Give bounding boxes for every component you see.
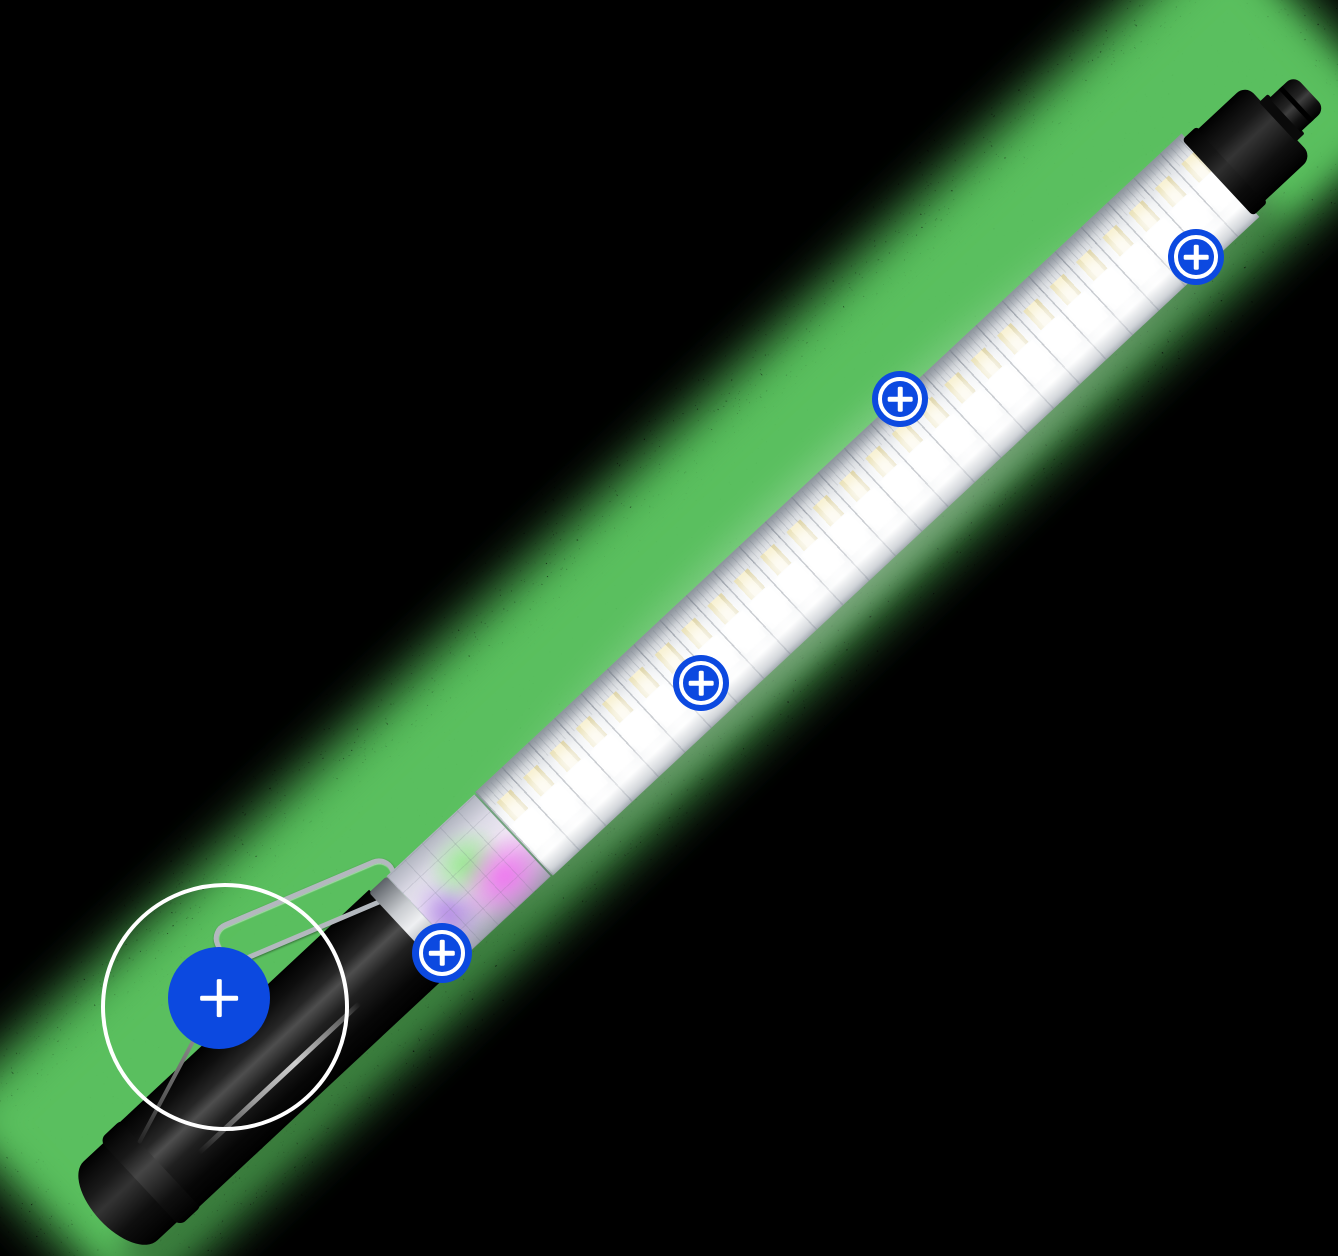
product-showcase (0, 0, 1338, 1256)
hotspot-led-strip-middle[interactable] (673, 655, 729, 711)
plus-icon (412, 923, 472, 983)
plus-icon (673, 655, 729, 711)
plus-icon (872, 371, 928, 427)
hotspot-tip-connector[interactable] (1168, 229, 1224, 285)
hotspot-led-strip-upper[interactable] (872, 371, 928, 427)
plus-icon (1168, 229, 1224, 285)
hotspot-color-diffuser[interactable] (412, 923, 472, 983)
hotspot-layer (0, 0, 1338, 1256)
plus-icon (168, 947, 270, 1049)
hotspot-handle[interactable] (168, 947, 270, 1049)
